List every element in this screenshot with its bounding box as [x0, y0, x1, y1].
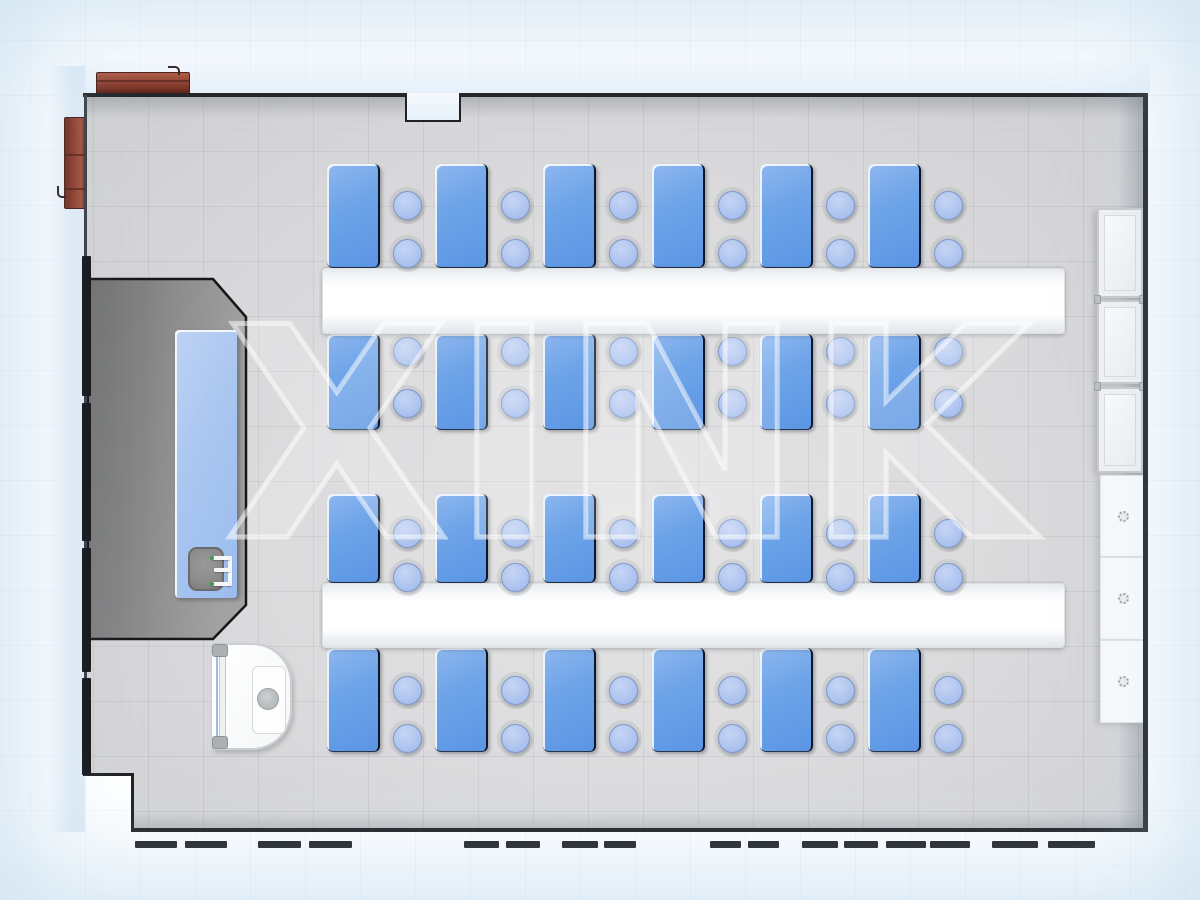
wall-top-left [83, 93, 408, 97]
wall-notch-recess [405, 93, 461, 122]
stool [826, 337, 855, 366]
stool [609, 239, 638, 268]
window-dash [886, 841, 926, 848]
stool [501, 389, 530, 418]
stool [609, 563, 638, 592]
stool [609, 337, 638, 366]
window-dash [258, 841, 301, 848]
washstand-rail-cap-top [212, 644, 228, 657]
glass-cabinet [1097, 387, 1143, 473]
stool [393, 563, 422, 592]
sink-faucet-arm-bottom [212, 582, 230, 586]
student-desk [868, 494, 921, 583]
cabinet-joint [1094, 295, 1101, 304]
window-dash [802, 841, 838, 848]
wall-bottom [131, 828, 1147, 832]
student-desk [760, 164, 813, 268]
student-desk [868, 648, 921, 752]
student-desk [652, 648, 705, 752]
stool [718, 563, 747, 592]
student-desk [435, 164, 488, 268]
wall-left-segment [82, 678, 91, 775]
stool [718, 724, 747, 753]
stool [393, 676, 422, 705]
stool [934, 337, 963, 366]
stool [826, 563, 855, 592]
window-dash [748, 841, 779, 848]
student-desk [760, 494, 813, 583]
stool [501, 239, 530, 268]
cabinet-knob-icon [1118, 676, 1129, 687]
wall-left-segment [82, 256, 91, 396]
stool [609, 724, 638, 753]
stool [718, 519, 747, 548]
window-dash [309, 841, 352, 848]
wall-step-vertical [131, 775, 134, 830]
stool [393, 191, 422, 220]
stool [934, 676, 963, 705]
service-bench [322, 583, 1065, 648]
wall-left-segment [82, 548, 91, 672]
student-desk [435, 334, 488, 430]
window-dash [992, 841, 1038, 848]
floorplan-canvas: XINK [0, 0, 1200, 900]
stool [718, 676, 747, 705]
stool [934, 563, 963, 592]
washstand-rail-cap-bottom [212, 736, 228, 749]
stool [718, 239, 747, 268]
stool [393, 724, 422, 753]
stool [718, 389, 747, 418]
brown-cabinet-left [64, 117, 86, 209]
stool [501, 563, 530, 592]
stool [501, 337, 530, 366]
stool [826, 389, 855, 418]
student-desk [327, 648, 380, 752]
window-dash [562, 841, 598, 848]
student-desk [543, 494, 596, 583]
stool [609, 519, 638, 548]
stool [609, 191, 638, 220]
stool [609, 676, 638, 705]
stool [826, 724, 855, 753]
sink-faucet-arm-mid [214, 568, 230, 572]
student-desk [760, 334, 813, 430]
stool [501, 724, 530, 753]
stool [501, 676, 530, 705]
stool [718, 337, 747, 366]
sink-faucet-arm-top [212, 556, 230, 560]
student-desk [868, 334, 921, 430]
stool [826, 519, 855, 548]
window-dash [844, 841, 878, 848]
wall-right [1143, 93, 1148, 832]
service-bench [322, 268, 1065, 334]
window-dash [135, 841, 177, 848]
stool [501, 519, 530, 548]
window-dash [710, 841, 741, 848]
student-desk [435, 494, 488, 583]
cabinet-knob-icon [1118, 511, 1129, 522]
floor-shadow-bottom [133, 812, 1145, 829]
student-desk [760, 648, 813, 752]
brown-credenza-top [96, 72, 190, 95]
cabinet-knob-icon [1118, 593, 1129, 604]
student-desk [543, 648, 596, 752]
sink-valve-dot [210, 556, 214, 560]
student-desk [327, 494, 380, 583]
stool [934, 389, 963, 418]
student-desk [868, 164, 921, 268]
stool [826, 191, 855, 220]
student-desk [327, 334, 380, 430]
floor-shadow-top [85, 96, 1145, 118]
glass-cabinet [1097, 300, 1143, 384]
stool [934, 191, 963, 220]
stool [934, 239, 963, 268]
sink-valve-dot [210, 582, 214, 586]
student-desk [435, 648, 488, 752]
student-desk [652, 334, 705, 430]
window-dash [506, 841, 540, 848]
washstand-rail-accent [216, 655, 218, 739]
stool [393, 519, 422, 548]
wall-top-right [458, 93, 1147, 97]
stool [393, 337, 422, 366]
student-desk [652, 164, 705, 268]
stool [393, 389, 422, 418]
washstand-rail [219, 651, 226, 743]
stool [826, 239, 855, 268]
stool [718, 191, 747, 220]
credenza-hook-icon [168, 66, 180, 75]
washstand-drain [257, 688, 279, 710]
window-dash [185, 841, 227, 848]
stool [501, 191, 530, 220]
cabinet-joint [1094, 382, 1101, 391]
left-cabinet-hook-icon [57, 186, 66, 198]
window-dash [604, 841, 636, 848]
stool [609, 389, 638, 418]
stool [934, 519, 963, 548]
wall-left-segment [82, 403, 91, 541]
wall-step-horizontal [83, 773, 134, 776]
student-desk [327, 164, 380, 268]
window-dash [1048, 841, 1095, 848]
stool [826, 676, 855, 705]
student-desk [543, 164, 596, 268]
window-dash [930, 841, 970, 848]
student-desk [652, 494, 705, 583]
window-dash [464, 841, 499, 848]
stool [934, 724, 963, 753]
stool [393, 239, 422, 268]
student-desk [543, 334, 596, 430]
glass-cabinet [1097, 208, 1143, 298]
